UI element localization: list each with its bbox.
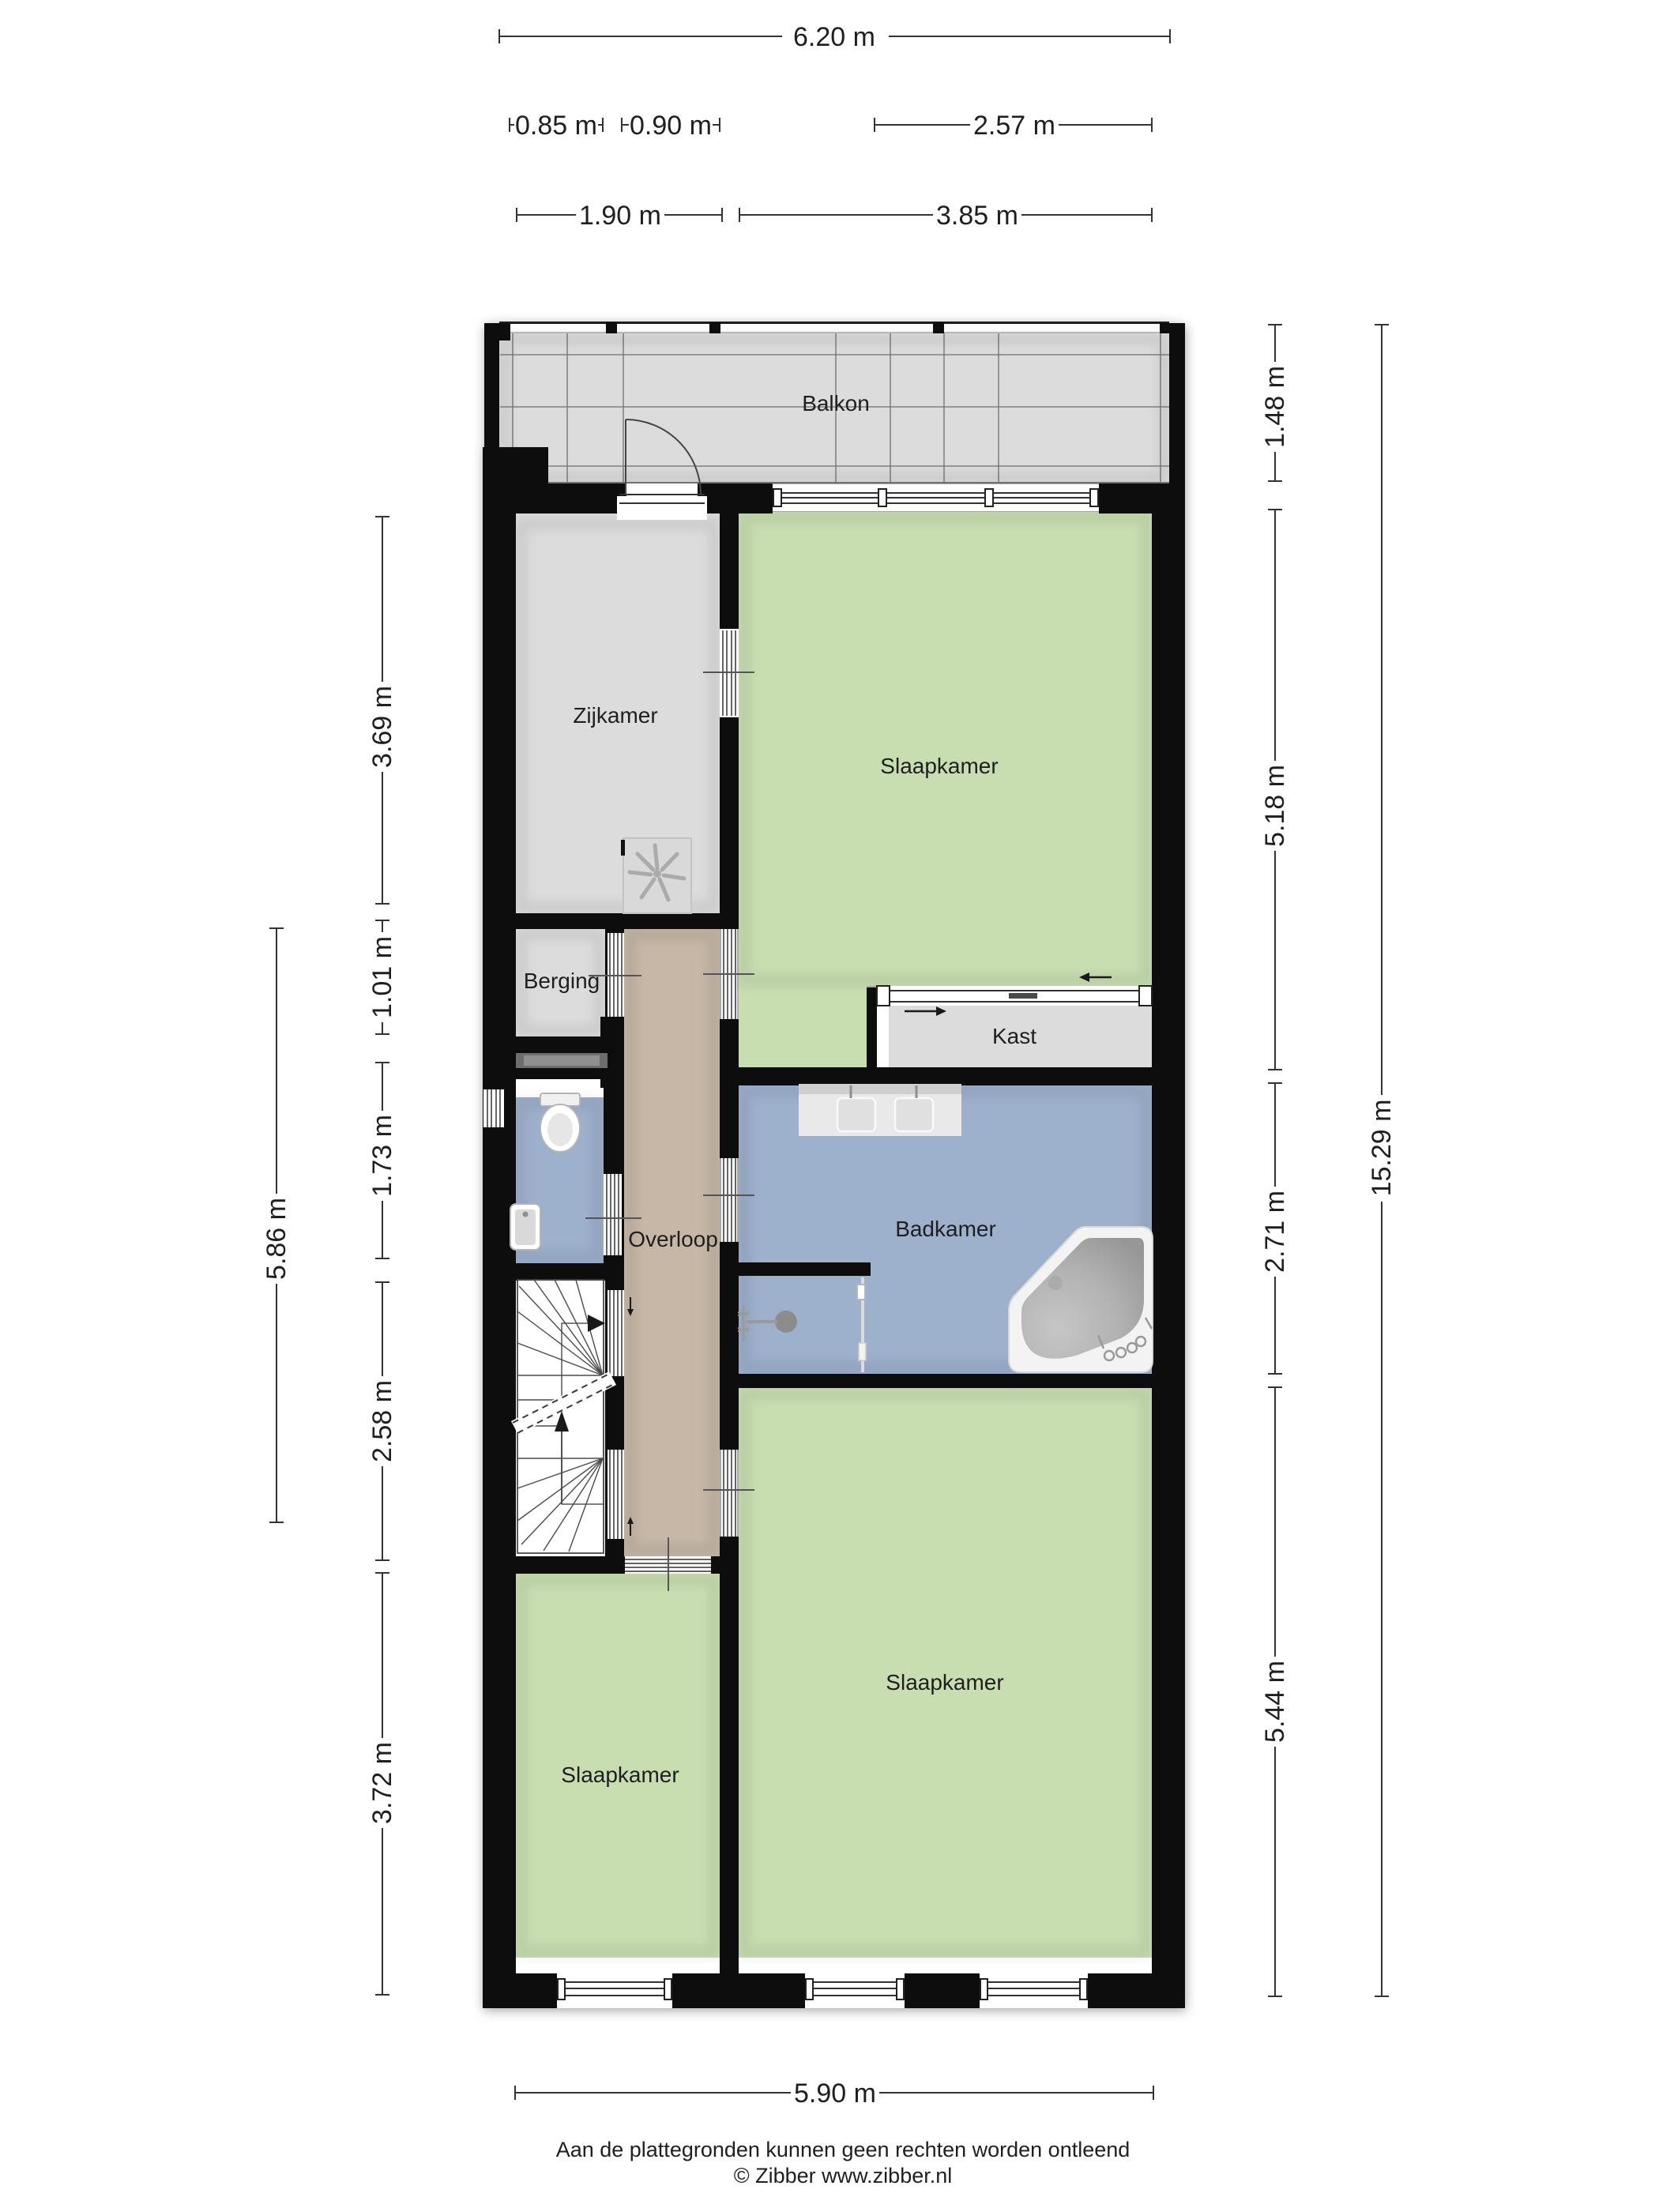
svg-text:5.18 m: 5.18 m — [1260, 765, 1290, 847]
svg-text:Slaapkamer: Slaapkamer — [886, 1670, 1003, 1695]
svg-text:Kast: Kast — [992, 1024, 1036, 1048]
svg-text:1.01 m: 1.01 m — [367, 936, 397, 1018]
svg-text:3.72 m: 3.72 m — [367, 1742, 397, 1824]
svg-text:3.85 m: 3.85 m — [936, 201, 1018, 231]
svg-text:Overloop: Overloop — [628, 1227, 718, 1251]
svg-text:Slaapkamer: Slaapkamer — [880, 754, 998, 778]
svg-text:Slaapkamer: Slaapkamer — [561, 1762, 679, 1787]
svg-text:2.71 m: 2.71 m — [1260, 1191, 1290, 1273]
svg-text:© Zibber www.zibber.nl: © Zibber www.zibber.nl — [734, 2164, 953, 2188]
svg-text:Zijkamer: Zijkamer — [573, 703, 657, 728]
svg-text:Berging: Berging — [524, 969, 600, 993]
svg-text:3.69 m: 3.69 m — [367, 686, 397, 768]
svg-text:2.57 m: 2.57 m — [973, 111, 1055, 141]
svg-text:5.44 m: 5.44 m — [1260, 1661, 1290, 1743]
svg-text:Balkon: Balkon — [802, 391, 870, 416]
svg-text:1.48 m: 1.48 m — [1260, 366, 1290, 448]
svg-text:0.85 m: 0.85 m — [515, 111, 597, 141]
svg-text:5.86 m: 5.86 m — [261, 1198, 292, 1280]
svg-text:0.90 m: 0.90 m — [630, 111, 712, 141]
svg-text:6.20 m: 6.20 m — [793, 22, 875, 52]
svg-text:Aan de plattegronden kunnen ge: Aan de plattegronden kunnen geen rechten… — [556, 2138, 1130, 2161]
svg-text:1.90 m: 1.90 m — [579, 201, 661, 231]
svg-text:5.90 m: 5.90 m — [794, 2078, 876, 2109]
svg-text:Badkamer: Badkamer — [895, 1217, 996, 1241]
svg-text:1.73 m: 1.73 m — [367, 1115, 397, 1197]
svg-text:15.29 m: 15.29 m — [1367, 1100, 1397, 1197]
svg-text:2.58 m: 2.58 m — [367, 1380, 397, 1462]
